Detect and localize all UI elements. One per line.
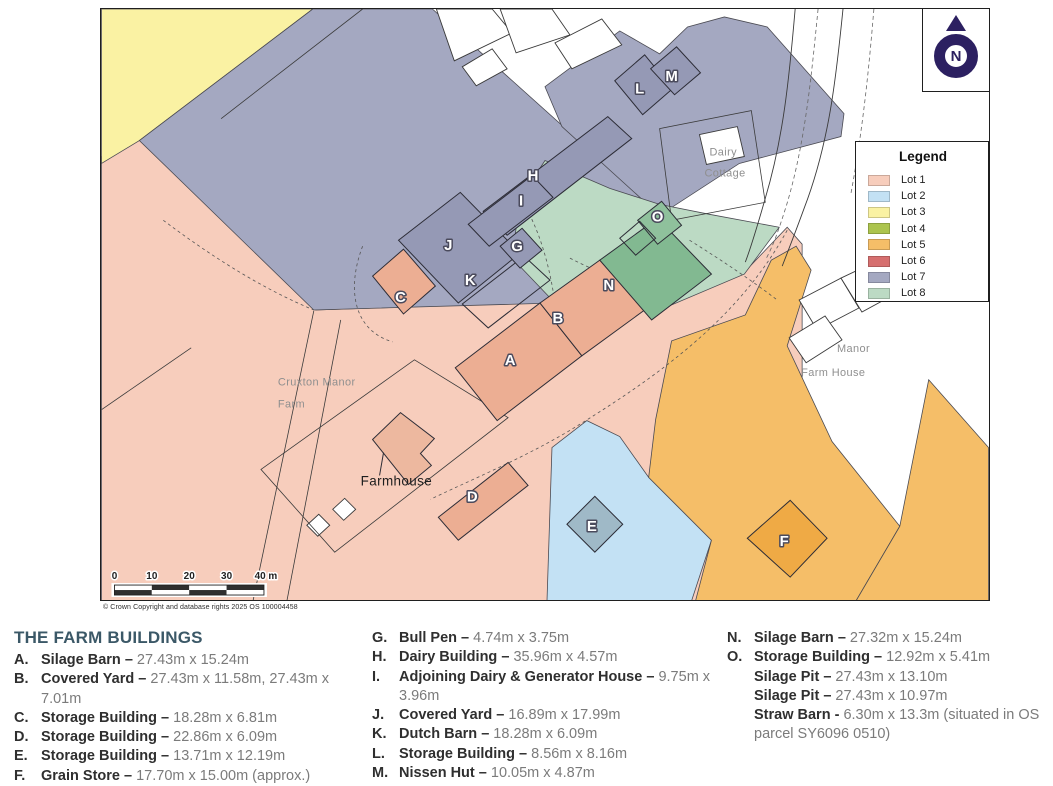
north-arrow-box: N — [922, 8, 990, 92]
lot7-swatch — [868, 272, 890, 283]
compass-ring-icon: N — [934, 34, 978, 78]
lot1-swatch — [868, 175, 890, 186]
building-e-label: E — [587, 518, 597, 535]
manor-label: Manor — [837, 343, 870, 355]
list-entry-o: O.Storage Building – 12.92m x 5.41m — [727, 648, 1041, 667]
entry-letter: F. — [14, 767, 41, 786]
entry-letter: O. — [727, 648, 754, 667]
legend-item-lot3: Lot 3 — [868, 204, 978, 220]
map-svg: A B C D E F G H I J K L M N O Cruxton Ma… — [101, 9, 989, 600]
list-entry-h: H.Dairy Building – 35.96m x 4.57m — [372, 648, 720, 667]
list-entry-n: N.Silage Barn – 27.32m x 15.24m — [727, 629, 1041, 648]
entry-letter: E. — [14, 747, 41, 766]
entry-text: Storage Building – 13.71m x 12.19m — [41, 747, 285, 766]
scale-tick-20: 20 — [184, 571, 196, 582]
list-entry-silage-pit-2: Silage Pit – 27.43m x 10.97m — [727, 687, 1041, 706]
lot2-swatch — [868, 191, 890, 202]
lot8-label: Lot 8 — [901, 287, 925, 299]
map-frame: A B C D E F G H I J K L M N O Cruxton Ma… — [100, 8, 990, 601]
entry-letter: H. — [372, 648, 399, 667]
cottage-label: Cottage — [704, 167, 745, 179]
scale-tick-10: 10 — [146, 571, 158, 582]
entry-letter: B. — [14, 670, 41, 709]
entry-text: Covered Yard – 27.43m x 11.58m, 27.43m x… — [41, 670, 364, 709]
entry-text: Silage Barn – 27.32m x 15.24m — [754, 629, 962, 648]
list-entry-l: L.Storage Building – 8.56m x 8.16m — [372, 745, 720, 764]
entry-letter: I. — [372, 668, 399, 707]
entry-text: Storage Building – 8.56m x 8.16m — [399, 745, 627, 764]
lot7-label: Lot 7 — [901, 271, 925, 283]
list-entry-k: K.Dutch Barn – 18.28m x 6.09m — [372, 725, 720, 744]
building-g-label: G — [511, 238, 523, 255]
lot3-label: Lot 3 — [901, 206, 925, 218]
lot-5-area-east — [856, 380, 989, 600]
entry-letter — [727, 706, 754, 745]
farm-house-label: Farm House — [801, 367, 865, 379]
list-entry-f: F.Grain Store – 17.70m x 15.00m (approx.… — [14, 767, 364, 786]
list-entry-silage-pit-1: Silage Pit – 27.43m x 13.10m — [727, 668, 1041, 687]
entry-text: Dairy Building – 35.96m x 4.57m — [399, 648, 617, 667]
list-entry-b: B.Covered Yard – 27.43m x 11.58m, 27.43m… — [14, 670, 364, 709]
list-entry-a: A.Silage Barn – 27.43m x 15.24m — [14, 651, 364, 670]
lot1-label: Lot 1 — [901, 174, 925, 186]
legend-item-lot5: Lot 5 — [868, 237, 978, 253]
list-entry-straw-barn: Straw Barn - 6.30m x 13.3m (situated in … — [727, 706, 1041, 745]
entry-text: Silage Barn – 27.43m x 15.24m — [41, 651, 249, 670]
entry-letter — [727, 687, 754, 706]
site-plan-page: A B C D E F G H I J K L M N O Cruxton Ma… — [0, 0, 1053, 763]
legend-item-lot4: Lot 4 — [868, 221, 978, 237]
list-entry-c: C.Storage Building – 18.28m x 6.81m — [14, 709, 364, 728]
buildings-list-col3: N.Silage Barn – 27.32m x 15.24m O.Storag… — [727, 629, 1041, 745]
building-b-label: B — [553, 310, 564, 327]
entry-letter: A. — [14, 651, 41, 670]
lot6-swatch — [868, 256, 890, 267]
legend-item-lot2: Lot 2 — [868, 188, 978, 204]
scale-tick-40m: 40 m — [255, 571, 278, 582]
building-h-label: H — [528, 167, 539, 184]
entry-letter: M. — [372, 764, 399, 783]
entry-text: Bull Pen – 4.74m x 3.75m — [399, 629, 569, 648]
building-j-label: J — [444, 237, 452, 254]
north-arrow-icon — [946, 15, 966, 31]
buildings-list-col2: G.Bull Pen – 4.74m x 3.75m H.Dairy Build… — [372, 629, 720, 783]
lot5-label: Lot 5 — [901, 239, 925, 251]
lot2-label: Lot 2 — [901, 190, 925, 202]
north-letter: N — [951, 49, 962, 64]
lot4-swatch — [868, 223, 890, 234]
building-o-label: O — [652, 208, 664, 225]
list-entry-j: J.Covered Yard – 16.89m x 17.99m — [372, 706, 720, 725]
legend-item-lot6: Lot 6 — [868, 253, 978, 269]
legend-item-lot1: Lot 1 — [868, 172, 978, 188]
entry-letter: D. — [14, 728, 41, 747]
entry-text: Adjoining Dairy & Generator House – 9.75… — [399, 668, 720, 707]
entry-text: Storage Building – 22.86m x 6.09m — [41, 728, 277, 747]
entry-text: Covered Yard – 16.89m x 17.99m — [399, 706, 620, 725]
legend-box: Legend Lot 1 Lot 2 Lot 3 Lot 4 Lot 5 Lot… — [855, 141, 989, 302]
page-title: THE FARM BUILDINGS — [14, 627, 364, 649]
scale-bar-checker — [114, 585, 263, 595]
legend-item-lot8: Lot 8 — [868, 285, 978, 301]
entry-letter: L. — [372, 745, 399, 764]
entry-text: Straw Barn - 6.30m x 13.3m (situated in … — [754, 706, 1041, 745]
scale-tick-0: 0 — [112, 571, 118, 582]
cruxton-manor-label: Cruxton Manor — [278, 377, 356, 389]
list-entry-i: I.Adjoining Dairy & Generator House – 9.… — [372, 668, 720, 707]
building-l-label: L — [635, 81, 644, 98]
entry-letter: N. — [727, 629, 754, 648]
list-entry-g: G.Bull Pen – 4.74m x 3.75m — [372, 629, 720, 648]
lot6-label: Lot 6 — [901, 255, 925, 267]
buildings-list-col1: THE FARM BUILDINGS A.Silage Barn – 27.43… — [14, 627, 364, 786]
list-entry-m: M.Nissen Hut – 10.05m x 4.87m — [372, 764, 720, 783]
entry-letter: C. — [14, 709, 41, 728]
copyright-notice: © Crown Copyright and database rights 20… — [103, 604, 298, 611]
lot8-swatch — [868, 288, 890, 299]
entry-text: Dutch Barn – 18.28m x 6.09m — [399, 725, 597, 744]
legend-item-lot7: Lot 7 — [868, 269, 978, 285]
entry-text: Storage Building – 18.28m x 6.81m — [41, 709, 277, 728]
building-c-label: C — [395, 289, 406, 306]
entry-text: Nissen Hut – 10.05m x 4.87m — [399, 764, 595, 783]
cruxton-farm-label: Farm — [278, 399, 305, 411]
building-f-label: F — [780, 533, 789, 550]
entry-text: Silage Pit – 27.43m x 10.97m — [754, 687, 947, 706]
entry-letter — [727, 668, 754, 687]
entry-letter: J. — [372, 706, 399, 725]
legend-title: Legend — [868, 149, 978, 164]
farmhouse-label: Farmhouse — [361, 473, 433, 488]
dairy-label: Dairy — [709, 147, 737, 159]
entry-text: Grain Store – 17.70m x 15.00m (approx.) — [41, 767, 310, 786]
list-entry-e: E.Storage Building – 13.71m x 12.19m — [14, 747, 364, 766]
entry-letter: K. — [372, 725, 399, 744]
building-a-label: A — [505, 352, 516, 369]
building-m-label: M — [665, 68, 677, 85]
building-i-label: I — [519, 192, 523, 209]
entry-text: Storage Building – 12.92m x 5.41m — [754, 648, 990, 667]
building-d-label: D — [467, 488, 478, 505]
building-n-label: N — [603, 277, 614, 294]
list-entry-d: D.Storage Building – 22.86m x 6.09m — [14, 728, 364, 747]
entry-letter: G. — [372, 629, 399, 648]
scale-tick-30: 30 — [221, 571, 233, 582]
building-k-label: K — [465, 272, 476, 289]
lot3-swatch — [868, 207, 890, 218]
lot5-swatch — [868, 239, 890, 250]
lot4-label: Lot 4 — [901, 223, 925, 235]
entry-text: Silage Pit – 27.43m x 13.10m — [754, 668, 947, 687]
